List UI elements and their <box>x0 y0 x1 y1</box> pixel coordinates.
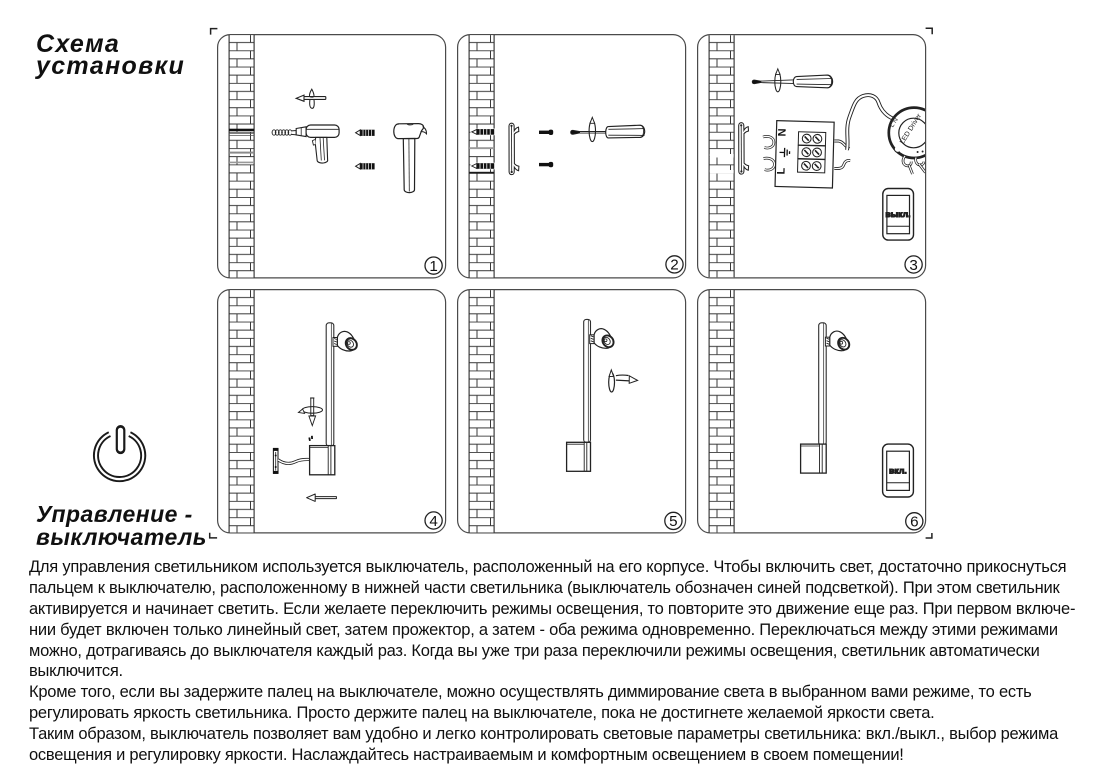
svg-text:1: 1 <box>429 257 437 274</box>
svg-text:L: L <box>776 167 788 174</box>
svg-text:2: 2 <box>670 256 678 273</box>
svg-text:6: 6 <box>910 513 918 530</box>
svg-text:N: N <box>777 128 789 136</box>
svg-text:5: 5 <box>669 513 677 530</box>
svg-text:3: 3 <box>910 256 918 273</box>
svg-text:вкл.: вкл. <box>889 465 907 475</box>
svg-text:4: 4 <box>429 513 437 530</box>
svg-text:выкл.: выкл. <box>886 209 911 219</box>
